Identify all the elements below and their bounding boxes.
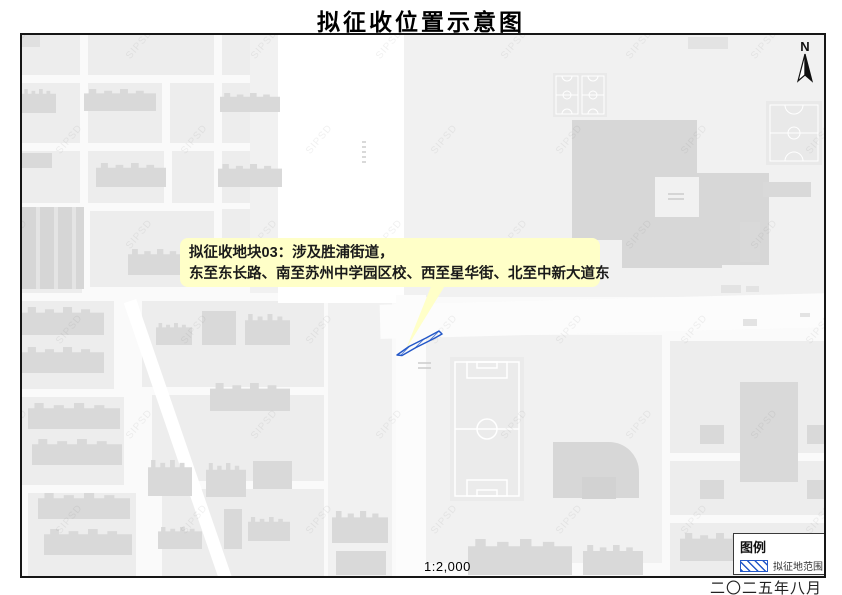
map-building bbox=[336, 551, 386, 575]
map-building bbox=[210, 383, 290, 411]
acquisition-hatch-swatch bbox=[740, 560, 768, 572]
legend-item-label: 拟征地范围 bbox=[773, 558, 823, 573]
map-date: 二〇二五年八月 bbox=[710, 577, 822, 595]
map-building bbox=[700, 480, 724, 499]
legend-item: 拟征地范围 bbox=[740, 558, 825, 573]
map-building-cluster bbox=[22, 207, 84, 289]
river-label-blob bbox=[362, 139, 366, 163]
campus-building bbox=[622, 240, 722, 268]
road-label-blob bbox=[743, 319, 757, 326]
map-building bbox=[763, 182, 811, 197]
north-arrow: N bbox=[795, 40, 815, 88]
map-canvas: SIPSDSIPSDSIPSDSIPSDSIPSDSIPSDSIPSDSIPSD… bbox=[20, 33, 826, 578]
map-building bbox=[700, 425, 724, 444]
callout-line1: 拟征收地块03：涉及胜浦街道， bbox=[189, 243, 600, 264]
acquisition-area-polygon bbox=[395, 325, 451, 361]
map-building bbox=[202, 311, 236, 345]
legend: 图例 拟征地范围 bbox=[733, 533, 826, 575]
map-parcel bbox=[88, 35, 214, 75]
map-parcel bbox=[172, 151, 214, 203]
road-label-blob bbox=[721, 285, 741, 293]
map-building bbox=[224, 509, 242, 549]
callout-line2: 东至东长路、南至苏州中学园区校、西至星华街、北至中新大道东 bbox=[189, 264, 600, 285]
page-title: 拟征收位置示意图 bbox=[0, 3, 842, 37]
map-building bbox=[740, 222, 760, 262]
tiny-map-label bbox=[688, 37, 728, 49]
tiny-map-label bbox=[418, 361, 431, 369]
basketball-courts bbox=[553, 73, 607, 117]
tiny-map-label bbox=[668, 191, 684, 200]
map-building bbox=[740, 382, 798, 482]
soccer-field bbox=[450, 357, 524, 501]
north-arrow-icon bbox=[795, 53, 815, 83]
school-building bbox=[582, 477, 616, 499]
road-label-blob bbox=[800, 313, 810, 317]
map-building bbox=[22, 153, 52, 168]
map-parcel bbox=[170, 83, 214, 143]
page: 拟征收位置示意图 bbox=[0, 0, 842, 595]
basketball-court bbox=[766, 101, 822, 165]
map-building bbox=[807, 425, 824, 444]
scale-text: 1:2,000 bbox=[424, 559, 471, 574]
map-parcel bbox=[22, 83, 80, 143]
road-label-blob bbox=[746, 286, 759, 292]
map-building bbox=[807, 480, 824, 499]
north-label: N bbox=[795, 40, 815, 53]
annotation-callout: 拟征收地块03：涉及胜浦街道， 东至东长路、南至苏州中学园区校、西至星华街、北至… bbox=[180, 238, 600, 287]
tiny-map-label bbox=[22, 35, 40, 47]
map-building bbox=[253, 461, 292, 489]
legend-title: 图例 bbox=[740, 537, 825, 556]
